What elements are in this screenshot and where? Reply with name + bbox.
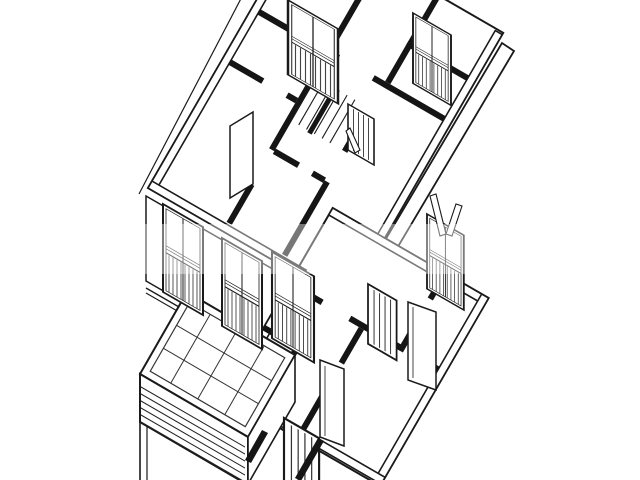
floor-plan-canvas: Axonometric cutaway line drawing of a si…	[0, 0, 640, 480]
door-leaf-left-room	[230, 112, 253, 198]
watermark-band	[118, 224, 510, 274]
door-leaf-vestibule	[320, 360, 344, 446]
axonometric-floor-plan: Axonometric cutaway line drawing of a si…	[0, 0, 640, 480]
door-leaf-lower-block	[408, 302, 436, 390]
